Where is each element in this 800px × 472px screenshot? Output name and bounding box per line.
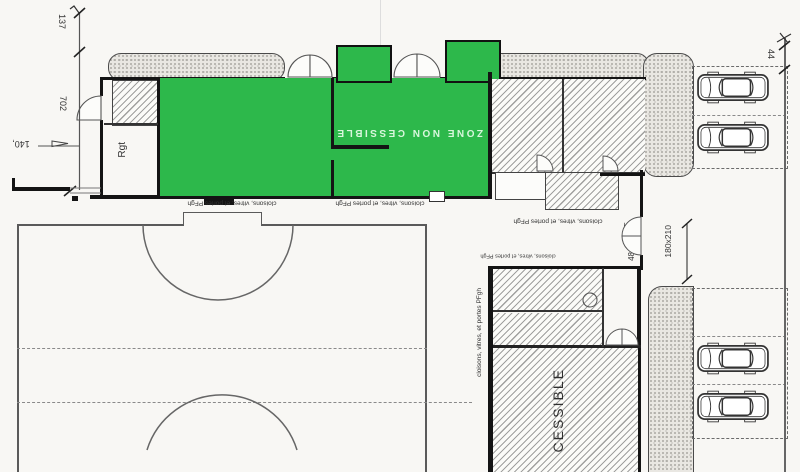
door-swing-icon bbox=[77, 96, 101, 120]
door-swing-icon bbox=[537, 155, 553, 171]
door-swing-icon bbox=[622, 329, 638, 345]
door-swing-icon bbox=[288, 55, 310, 77]
field-goal-arc-bottom bbox=[147, 395, 297, 450]
dim-tick bbox=[779, 65, 790, 74]
door-swing-icon bbox=[603, 156, 618, 171]
door-swing-icon bbox=[622, 217, 641, 236]
car-icon bbox=[698, 391, 768, 422]
car-icon bbox=[698, 343, 768, 374]
car-icon bbox=[698, 72, 768, 103]
floor-plan: Rgt ZONE NON CESSIBLE CESSIBLE cloisons,… bbox=[0, 0, 800, 472]
dim-tick bbox=[779, 41, 790, 50]
door-swing-icon bbox=[394, 54, 417, 77]
plan-linework bbox=[0, 0, 800, 472]
field-goal-arc-top bbox=[143, 225, 293, 300]
car-icon bbox=[698, 122, 768, 153]
door-swing-icon bbox=[622, 236, 641, 255]
door-swing-icon bbox=[417, 54, 440, 77]
dim-hook bbox=[70, 6, 79, 13]
door-swing-icon bbox=[606, 329, 622, 345]
door-swing-icon bbox=[310, 55, 332, 77]
